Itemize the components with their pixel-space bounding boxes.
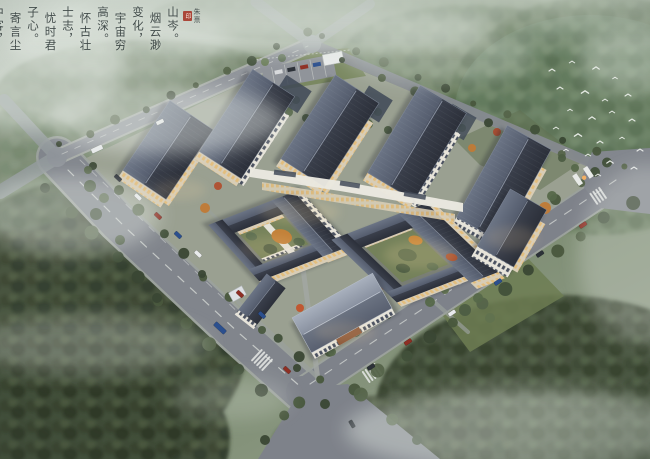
- calligraphy-column: 变化，: [130, 6, 146, 161]
- calligraphy-column: 寄言尘: [8, 6, 24, 161]
- calligraphy-signature-column: 朱熹 印: [183, 6, 202, 161]
- calligraphy-column: 忧时君: [43, 6, 59, 161]
- calligraphy-column: 烟云渺: [148, 6, 164, 161]
- poet-signature: 朱熹: [192, 8, 202, 161]
- calligraphy-column: 怀古壮: [78, 6, 94, 161]
- calligraphy-poem: 朱熹 印 山岑。 烟云渺 变化， 宇宙穷 高深。 怀古壮 士志， 忧时君 子心。…: [2, 6, 204, 161]
- architectural-aerial-rendering: 朱熹 印 山岑。 烟云渺 变化， 宇宙穷 高深。 怀古壮 士志， 忧时君 子心。…: [0, 0, 650, 459]
- calligraphy-column: 中客，: [0, 6, 6, 161]
- calligraphy-column: 士志，: [60, 6, 76, 161]
- calligraphy-column: 高深。: [95, 6, 111, 161]
- seal-stamp-icon: 印: [183, 11, 192, 21]
- calligraphy-column: 山岑。: [165, 6, 181, 161]
- calligraphy-column: 宇宙穷: [113, 6, 129, 161]
- calligraphy-column: 子心。: [25, 6, 41, 161]
